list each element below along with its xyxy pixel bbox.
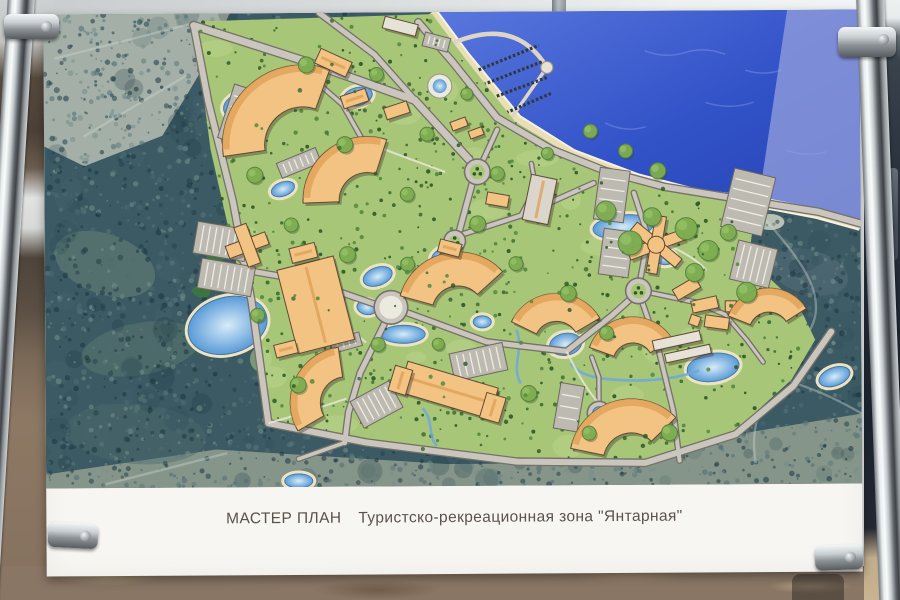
photo-scene: МАСТЕР ПЛАН Туристско-рекреационная зона… [0, 0, 900, 600]
frame-clamp-bottom-left [47, 522, 98, 550]
map-caption: МАСТЕР ПЛАН Туристско-рекреационная зона… [46, 484, 863, 600]
frame-clamp-top-right [838, 27, 896, 57]
caption-title: МАСТЕР ПЛАН [226, 510, 341, 529]
masterplan-sign-board: МАСТЕР ПЛАН Туристско-рекреационная зона… [43, 10, 862, 577]
masterplan-map [43, 10, 862, 489]
caption-subtitle: Туристско-рекреационная зона "Янтарная" [358, 508, 682, 528]
frame-clamp-bottom-right [815, 544, 864, 571]
frame-clamp-top-left [4, 14, 59, 39]
